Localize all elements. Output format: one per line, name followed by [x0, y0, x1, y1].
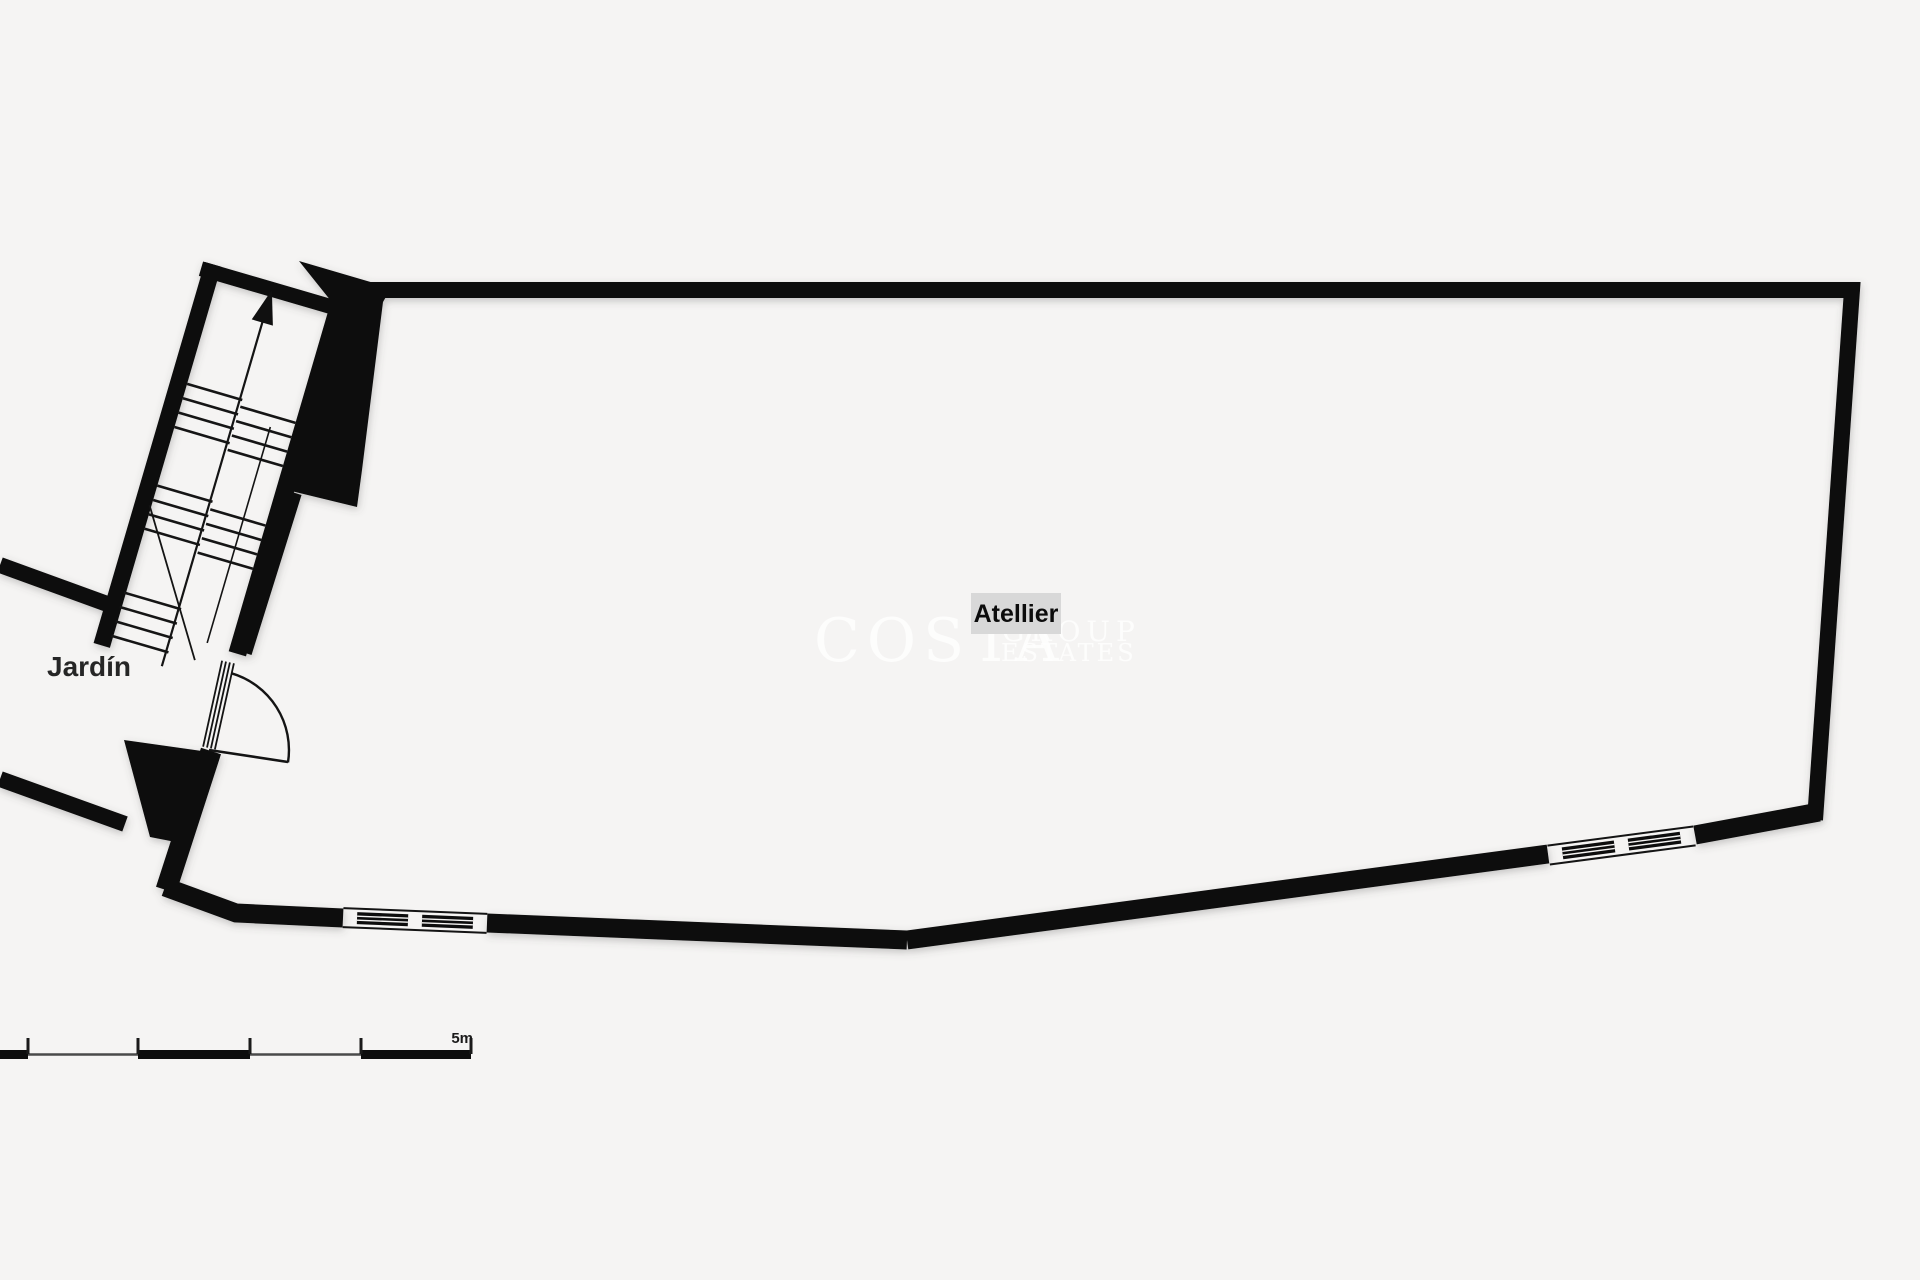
door-leaf-line	[209, 750, 288, 762]
stair-treads-upper	[172, 384, 297, 466]
wall-bottom-right-a	[1695, 812, 1819, 835]
scale-bar-label: 5m	[451, 1030, 473, 1047]
wall-garden-bottom	[0, 779, 125, 824]
watermark-word-estates: ESTATES	[1001, 639, 1137, 667]
wall-bottom-left-a	[487, 923, 907, 940]
door-swing-arc	[232, 673, 289, 762]
scale-bar: 5m	[0, 1030, 473, 1059]
atelier-label: Atellier	[971, 593, 1061, 634]
wall-top-right	[356, 290, 1852, 820]
atelier-label-text: Atellier	[974, 600, 1059, 628]
entrance-door	[203, 661, 289, 763]
window-bottom-left	[343, 908, 488, 933]
wall-bottom-left-b	[165, 887, 343, 918]
window-bottom-right	[1547, 826, 1695, 864]
wall-bottom-right-b	[907, 854, 1548, 940]
door-glazing	[203, 661, 234, 750]
garden-label-text: Jardín	[47, 651, 131, 682]
floor-plan-svg: COSTA GROUP ESTATES	[0, 0, 1920, 1280]
walls	[0, 261, 1852, 940]
wall-garden-top	[0, 565, 110, 605]
stair-wall-left	[102, 264, 213, 645]
